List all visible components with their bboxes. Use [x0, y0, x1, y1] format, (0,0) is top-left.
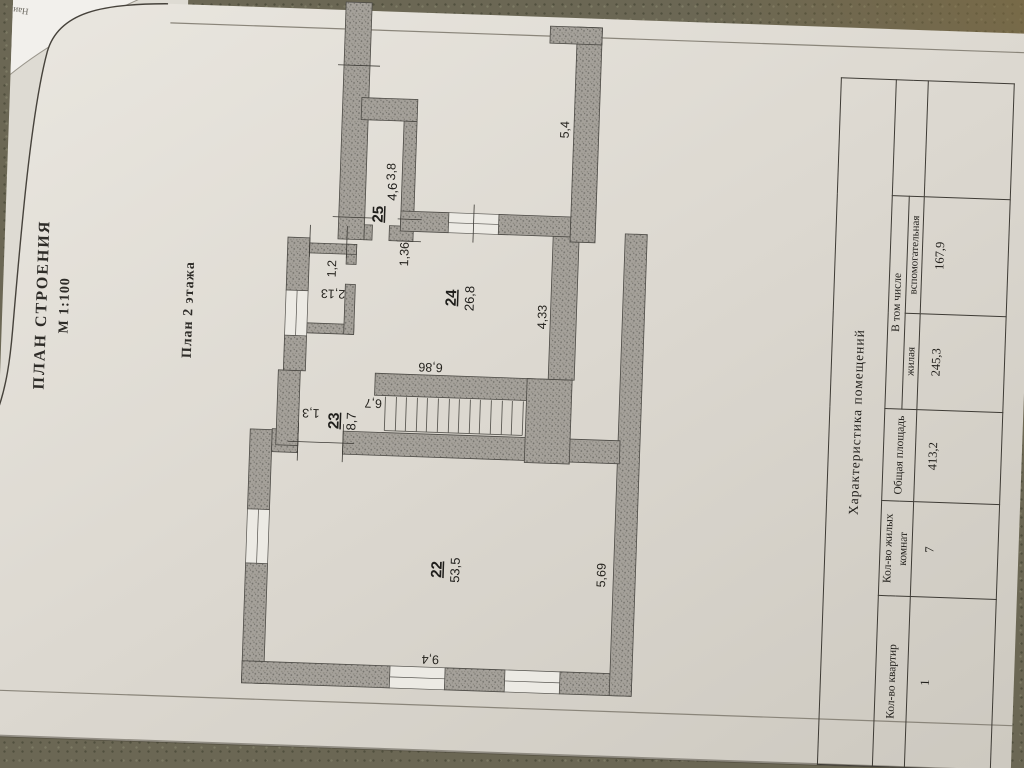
column-header-living-rooms: Кол-во жилых комнат [878, 500, 914, 596]
value-total-area: 413,2 [914, 410, 1003, 505]
room-23-area: 8,7 [343, 412, 359, 431]
column-header-total-area: Общая площадь [882, 409, 918, 502]
wall [286, 237, 310, 291]
room-24-number: 24 [443, 289, 461, 307]
value-auxiliary-area: 167,9 [921, 197, 1011, 317]
wall [524, 379, 572, 465]
wall [364, 225, 373, 240]
dim-1-36: 1,36 [397, 242, 412, 267]
wall [550, 26, 603, 45]
room-25-number: 25 [370, 206, 388, 223]
value-empty [925, 81, 1015, 200]
value-living-rooms: 7 [911, 502, 1000, 600]
wall [276, 370, 301, 446]
dim-1-2: 1,2 [325, 260, 340, 278]
scale-label: М 1:100 [56, 277, 73, 334]
photo-of-floor-plan-document: Наимено ЧЕЛ ПЛАН СТРОЕНИЯ М 1:100 План 2… [0, 0, 1024, 768]
dim-4-33: 4,33 [535, 305, 550, 330]
wall [444, 668, 505, 692]
room-22-number: 22 [428, 561, 446, 578]
dim-3-8: 3,8 [384, 163, 399, 181]
room-24-area: 26,8 [462, 286, 478, 312]
room-characteristics-table: Характеристика помещений Кол-во квартир … [817, 78, 1015, 768]
wall [247, 429, 272, 510]
column-header-empty [892, 80, 928, 197]
value-apartments: 1 [905, 597, 997, 768]
dim-2-13: 2,13 [321, 286, 346, 301]
dim-5-4: 5,4 [558, 121, 573, 139]
room-23-number: 23 [325, 412, 343, 429]
room-25-area: 4,6 [384, 182, 400, 201]
wall [283, 335, 306, 371]
dim-9-4: 9,4 [421, 652, 439, 667]
dim-5-69: 5,69 [594, 563, 609, 588]
wall [309, 243, 356, 255]
dim-1-3: 1,3 [302, 406, 320, 421]
dim-6-86: 6,86 [418, 360, 443, 375]
wall [548, 231, 579, 380]
room-22-area: 53,5 [447, 557, 463, 583]
wall [498, 214, 571, 237]
wall [400, 211, 449, 233]
document-sheet: Наимено ЧЕЛ ПЛАН СТРОЕНИЯ М 1:100 План 2… [0, 0, 1024, 768]
wall [241, 661, 390, 688]
dim-6-7: 6,7 [364, 396, 382, 411]
wall [361, 98, 418, 122]
value-living-area: 245,3 [917, 314, 1006, 413]
